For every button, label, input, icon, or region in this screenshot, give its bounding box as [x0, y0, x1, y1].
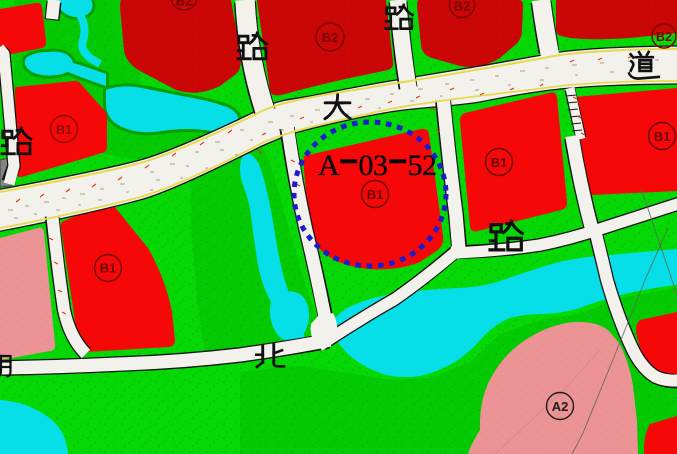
svg-text:B2: B2 [656, 30, 672, 44]
svg-text:B1: B1 [56, 123, 72, 137]
svg-text:B1: B1 [100, 261, 117, 276]
svg-text:A2: A2 [552, 399, 569, 414]
svg-text:A: A [318, 149, 340, 182]
svg-text:B2: B2 [176, 0, 193, 9]
svg-text:B1: B1 [491, 155, 508, 170]
svg-text:52: 52 [408, 149, 437, 182]
svg-text:B2: B2 [322, 30, 339, 45]
svg-text:B2: B2 [454, 0, 471, 14]
svg-text:B1: B1 [367, 187, 384, 202]
svg-text:03: 03 [359, 149, 388, 182]
svg-text:B1: B1 [654, 129, 671, 144]
